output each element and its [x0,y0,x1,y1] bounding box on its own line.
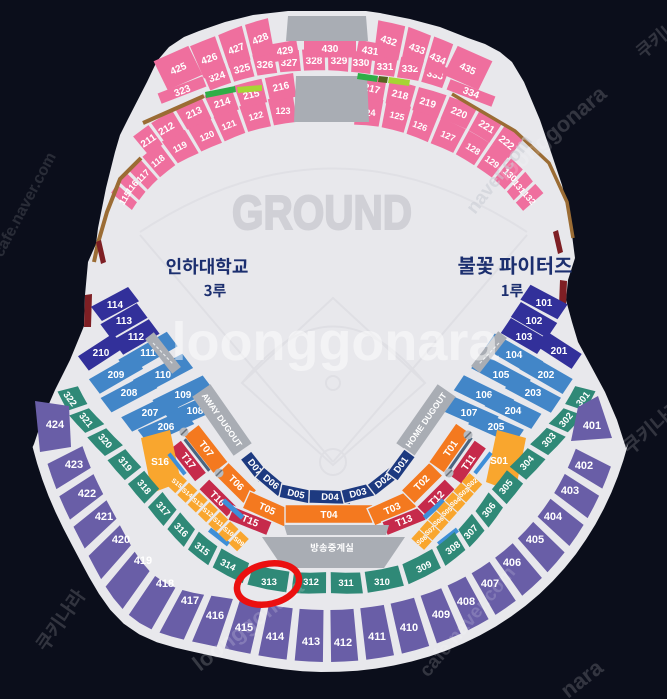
svg-text:112: 112 [128,332,145,343]
svg-text:404: 404 [544,511,563,523]
svg-text:311: 311 [338,578,354,589]
svg-text:202: 202 [538,370,555,381]
svg-text:205: 205 [488,422,505,433]
svg-text:109: 109 [175,390,192,401]
svg-text:421: 421 [95,511,113,523]
svg-text:114: 114 [107,300,124,311]
svg-text:414: 414 [266,631,285,643]
svg-text:123: 123 [275,106,290,116]
svg-text:103: 103 [516,332,533,343]
svg-text:328: 328 [306,56,323,67]
svg-text:S01: S01 [490,456,508,467]
svg-text:312: 312 [303,577,319,588]
svg-text:loonggonara: loonggonara [172,312,500,372]
svg-text:203: 203 [525,388,542,399]
svg-text:110: 110 [155,370,172,381]
svg-text:207: 207 [142,408,159,419]
svg-text:422: 422 [78,488,96,500]
svg-text:424: 424 [46,419,65,431]
svg-text:113: 113 [116,316,133,327]
svg-text:209: 209 [108,370,125,381]
svg-text:201: 201 [551,346,568,357]
svg-text:S16: S16 [151,457,169,468]
svg-text:430: 430 [322,44,339,55]
svg-text:401: 401 [583,420,601,432]
svg-text:412: 412 [334,637,352,649]
svg-text:204: 204 [505,406,522,417]
svg-text:423: 423 [65,459,83,471]
svg-text:326: 326 [257,60,274,71]
svg-text:GROUND: GROUND [232,187,412,240]
svg-text:330: 330 [353,58,370,69]
svg-text:313: 313 [261,577,277,588]
svg-text:210: 210 [93,348,110,359]
svg-text:405: 405 [526,534,544,546]
svg-text:403: 403 [561,485,579,497]
svg-text:208: 208 [121,388,138,399]
svg-text:410: 410 [400,622,418,634]
svg-text:T04: T04 [320,510,338,521]
svg-text:413: 413 [302,636,320,648]
svg-text:310: 310 [374,577,390,588]
svg-text:411: 411 [368,631,386,643]
svg-text:402: 402 [575,460,593,472]
svg-text:419: 419 [134,555,152,567]
svg-text:104: 104 [506,350,523,361]
svg-text:417: 417 [181,595,199,607]
svg-text:331: 331 [377,62,394,73]
svg-text:D04: D04 [321,492,340,504]
svg-text:409: 409 [432,609,450,621]
svg-text:420: 420 [112,534,130,546]
svg-text:102: 102 [526,316,543,327]
svg-text:416: 416 [206,610,224,622]
svg-text:101: 101 [536,298,553,309]
svg-text:329: 329 [331,56,348,67]
svg-text:418: 418 [156,578,174,590]
